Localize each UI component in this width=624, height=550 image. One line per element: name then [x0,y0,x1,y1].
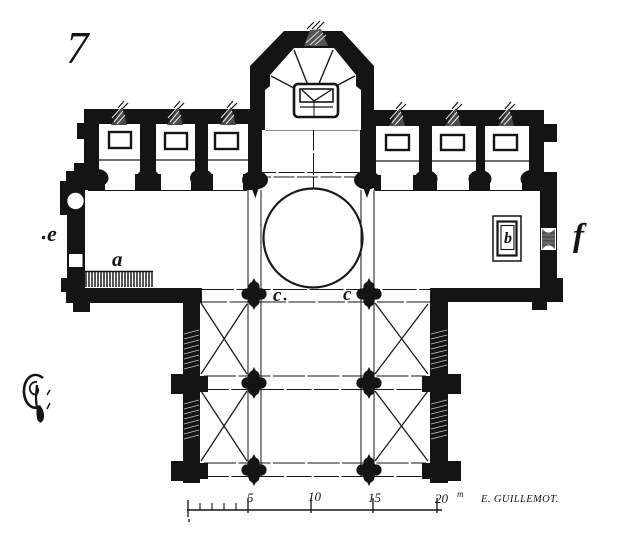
svg-text:E. GUILLEMOT.: E. GUILLEMOT. [480,494,559,505]
svg-text:c: c [343,284,352,305]
svg-text:5: 5 [247,490,254,505]
svg-text:a: a [112,247,123,271]
svg-text:m: m [457,489,464,499]
svg-text:b: b [504,230,512,247]
svg-text:20: 20 [435,491,449,506]
svg-text:e: e [47,221,57,246]
svg-text:10: 10 [308,489,322,504]
svg-text:c: c [273,285,282,306]
svg-text:15: 15 [368,490,382,505]
svg-text:7: 7 [66,23,91,73]
